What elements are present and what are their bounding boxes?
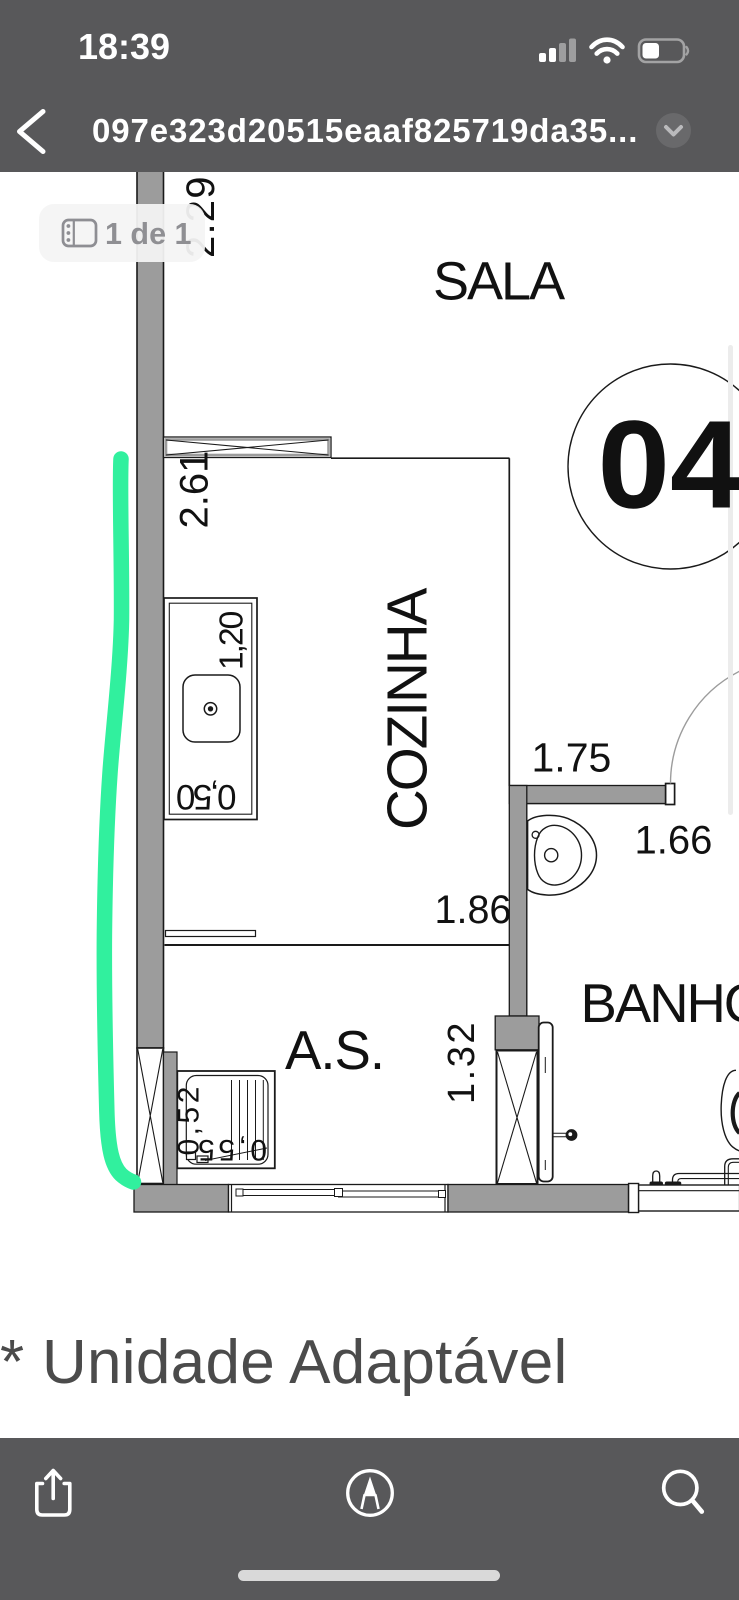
svg-text:0,50: 0,50 bbox=[176, 777, 236, 816]
svg-text:1.75: 1.75 bbox=[532, 735, 612, 781]
svg-text:2.61: 2.61 bbox=[173, 451, 217, 529]
svg-text:1.66: 1.66 bbox=[635, 819, 713, 863]
svg-text:1.32: 1.32 bbox=[441, 1020, 483, 1104]
svg-text:A.S.: A.S. bbox=[285, 1020, 384, 1081]
svg-text:0,55: 0,55 bbox=[195, 1133, 267, 1166]
svg-text:04: 04 bbox=[598, 396, 739, 535]
svg-text:SALA: SALA bbox=[433, 252, 565, 312]
svg-text:COZINHA: COZINHA bbox=[376, 587, 439, 830]
svg-text:BANHO: BANHO bbox=[581, 973, 739, 1034]
svg-text:1.86: 1.86 bbox=[435, 888, 512, 932]
svg-text:* Unidade Adaptável: * Unidade Adaptável bbox=[0, 1328, 568, 1397]
svg-text:1,20: 1,20 bbox=[214, 611, 251, 670]
